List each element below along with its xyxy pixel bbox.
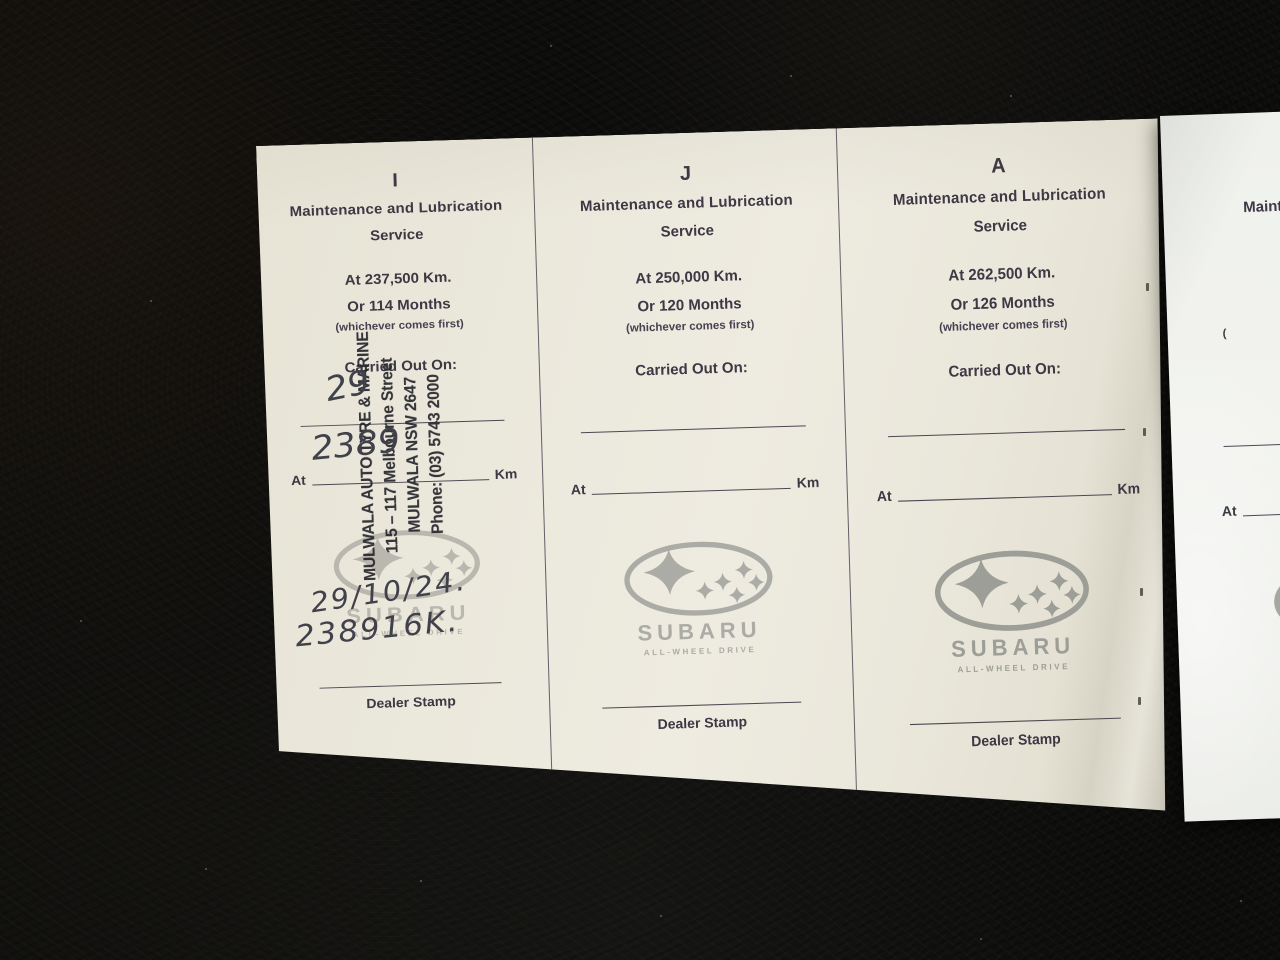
km-label: Km: [796, 474, 819, 491]
at-label: At: [1222, 503, 1237, 520]
carpet-speck: [980, 938, 982, 940]
subaru-logo-icon: [1271, 555, 1280, 645]
dealer-stamp-label: Dealer Stamp: [273, 690, 549, 714]
panel-title: Maintenance and Lubrication: [839, 183, 1160, 211]
subaru-logo-icon: [931, 547, 1091, 634]
dealer-stamp-label: Dealer Stamp: [551, 710, 854, 735]
subaru-logo-block: SUBARU ALL-WHEEL DRIVE: [850, 545, 1175, 678]
km-entry-row: At Km: [571, 473, 820, 498]
km-entry-line: [591, 474, 790, 495]
partial-km-entry-row: At: [1222, 489, 1280, 519]
panel-letter: A: [838, 150, 1160, 184]
service-panel-a: A Maintenance and Lubrication Service At…: [836, 118, 1179, 820]
photo-of-subaru-service-booklet: { "colors":{ "paper_cream":"#e9e6da", "p…: [0, 0, 1280, 960]
at-label: At: [877, 487, 892, 504]
subaru-logo-icon: [621, 538, 775, 619]
service-panel-i: I Maintenance and Lubrication Service At…: [256, 138, 553, 838]
km-entry-line: [897, 480, 1111, 502]
partial-date-entry-line: [1224, 433, 1280, 447]
carried-out-label: Carried Out On:: [844, 357, 1165, 385]
panel-title: Maintenance and Lubrication: [535, 190, 838, 216]
date-entry-line: [888, 429, 1125, 437]
km-target-text: At 250,000 Km.: [537, 264, 840, 290]
service-panel-j: J Maintenance and Lubrication Service At…: [532, 128, 857, 829]
service-panels-row: I Maintenance and Lubrication Service At…: [256, 118, 1179, 837]
staple-mark: [1140, 588, 1143, 596]
whichever-note: (whichever comes first): [843, 315, 1164, 337]
at-label: At: [291, 472, 306, 488]
panel-letter: J: [534, 158, 838, 190]
months-target-text: Or 126 Months: [842, 290, 1163, 318]
dealer-stamp-line: [319, 682, 501, 689]
panel-letter: I: [257, 166, 534, 196]
panel-subtitle: Service: [536, 218, 839, 244]
carpet-speck: [205, 868, 207, 870]
carpet-speck: [420, 880, 422, 882]
km-label: Km: [495, 466, 518, 482]
months-target-text: Or 120 Months: [538, 292, 841, 318]
km-label: Km: [1117, 480, 1140, 497]
panel-subtitle: Service: [259, 223, 535, 248]
km-entry-line: [1242, 489, 1280, 516]
carpet-speck: [80, 620, 82, 622]
panel-title: Maintenance and Lubrication: [258, 196, 534, 221]
panel-subtitle: Service: [840, 212, 1161, 240]
staple-mark: [1143, 428, 1146, 436]
at-label: At: [571, 481, 586, 497]
partial-whichever-note: (: [1222, 328, 1226, 340]
staple-mark: [1138, 697, 1141, 705]
km-target-text: At 262,500 Km.: [841, 261, 1162, 289]
carpet-speck: [660, 915, 662, 917]
dealer-stamp-line: [602, 702, 802, 709]
dealer-stamp-line: [910, 718, 1122, 726]
whichever-note: (whichever comes first): [539, 316, 842, 337]
partial-panel-title: Maint: [1243, 198, 1280, 216]
carpet-speck: [550, 45, 552, 47]
carried-out-label: Carried Out On:: [540, 356, 843, 382]
dealer-stamp-label: Dealer Stamp: [855, 726, 1176, 753]
km-entry-row: At Km: [877, 479, 1141, 505]
subaru-logo-block: SUBARU ALL-WHEEL DRIVE: [545, 536, 851, 660]
carpet-speck: [150, 300, 152, 302]
carpet-speck: [790, 75, 792, 77]
service-booklet-left-page: I Maintenance and Lubrication Service At…: [256, 118, 1179, 837]
carpet-speck: [1240, 900, 1242, 902]
km-target-text: At 237,500 Km.: [260, 267, 536, 292]
staple-mark: [1146, 283, 1149, 291]
carpet-speck: [1010, 95, 1012, 97]
date-entry-line: [581, 425, 805, 433]
